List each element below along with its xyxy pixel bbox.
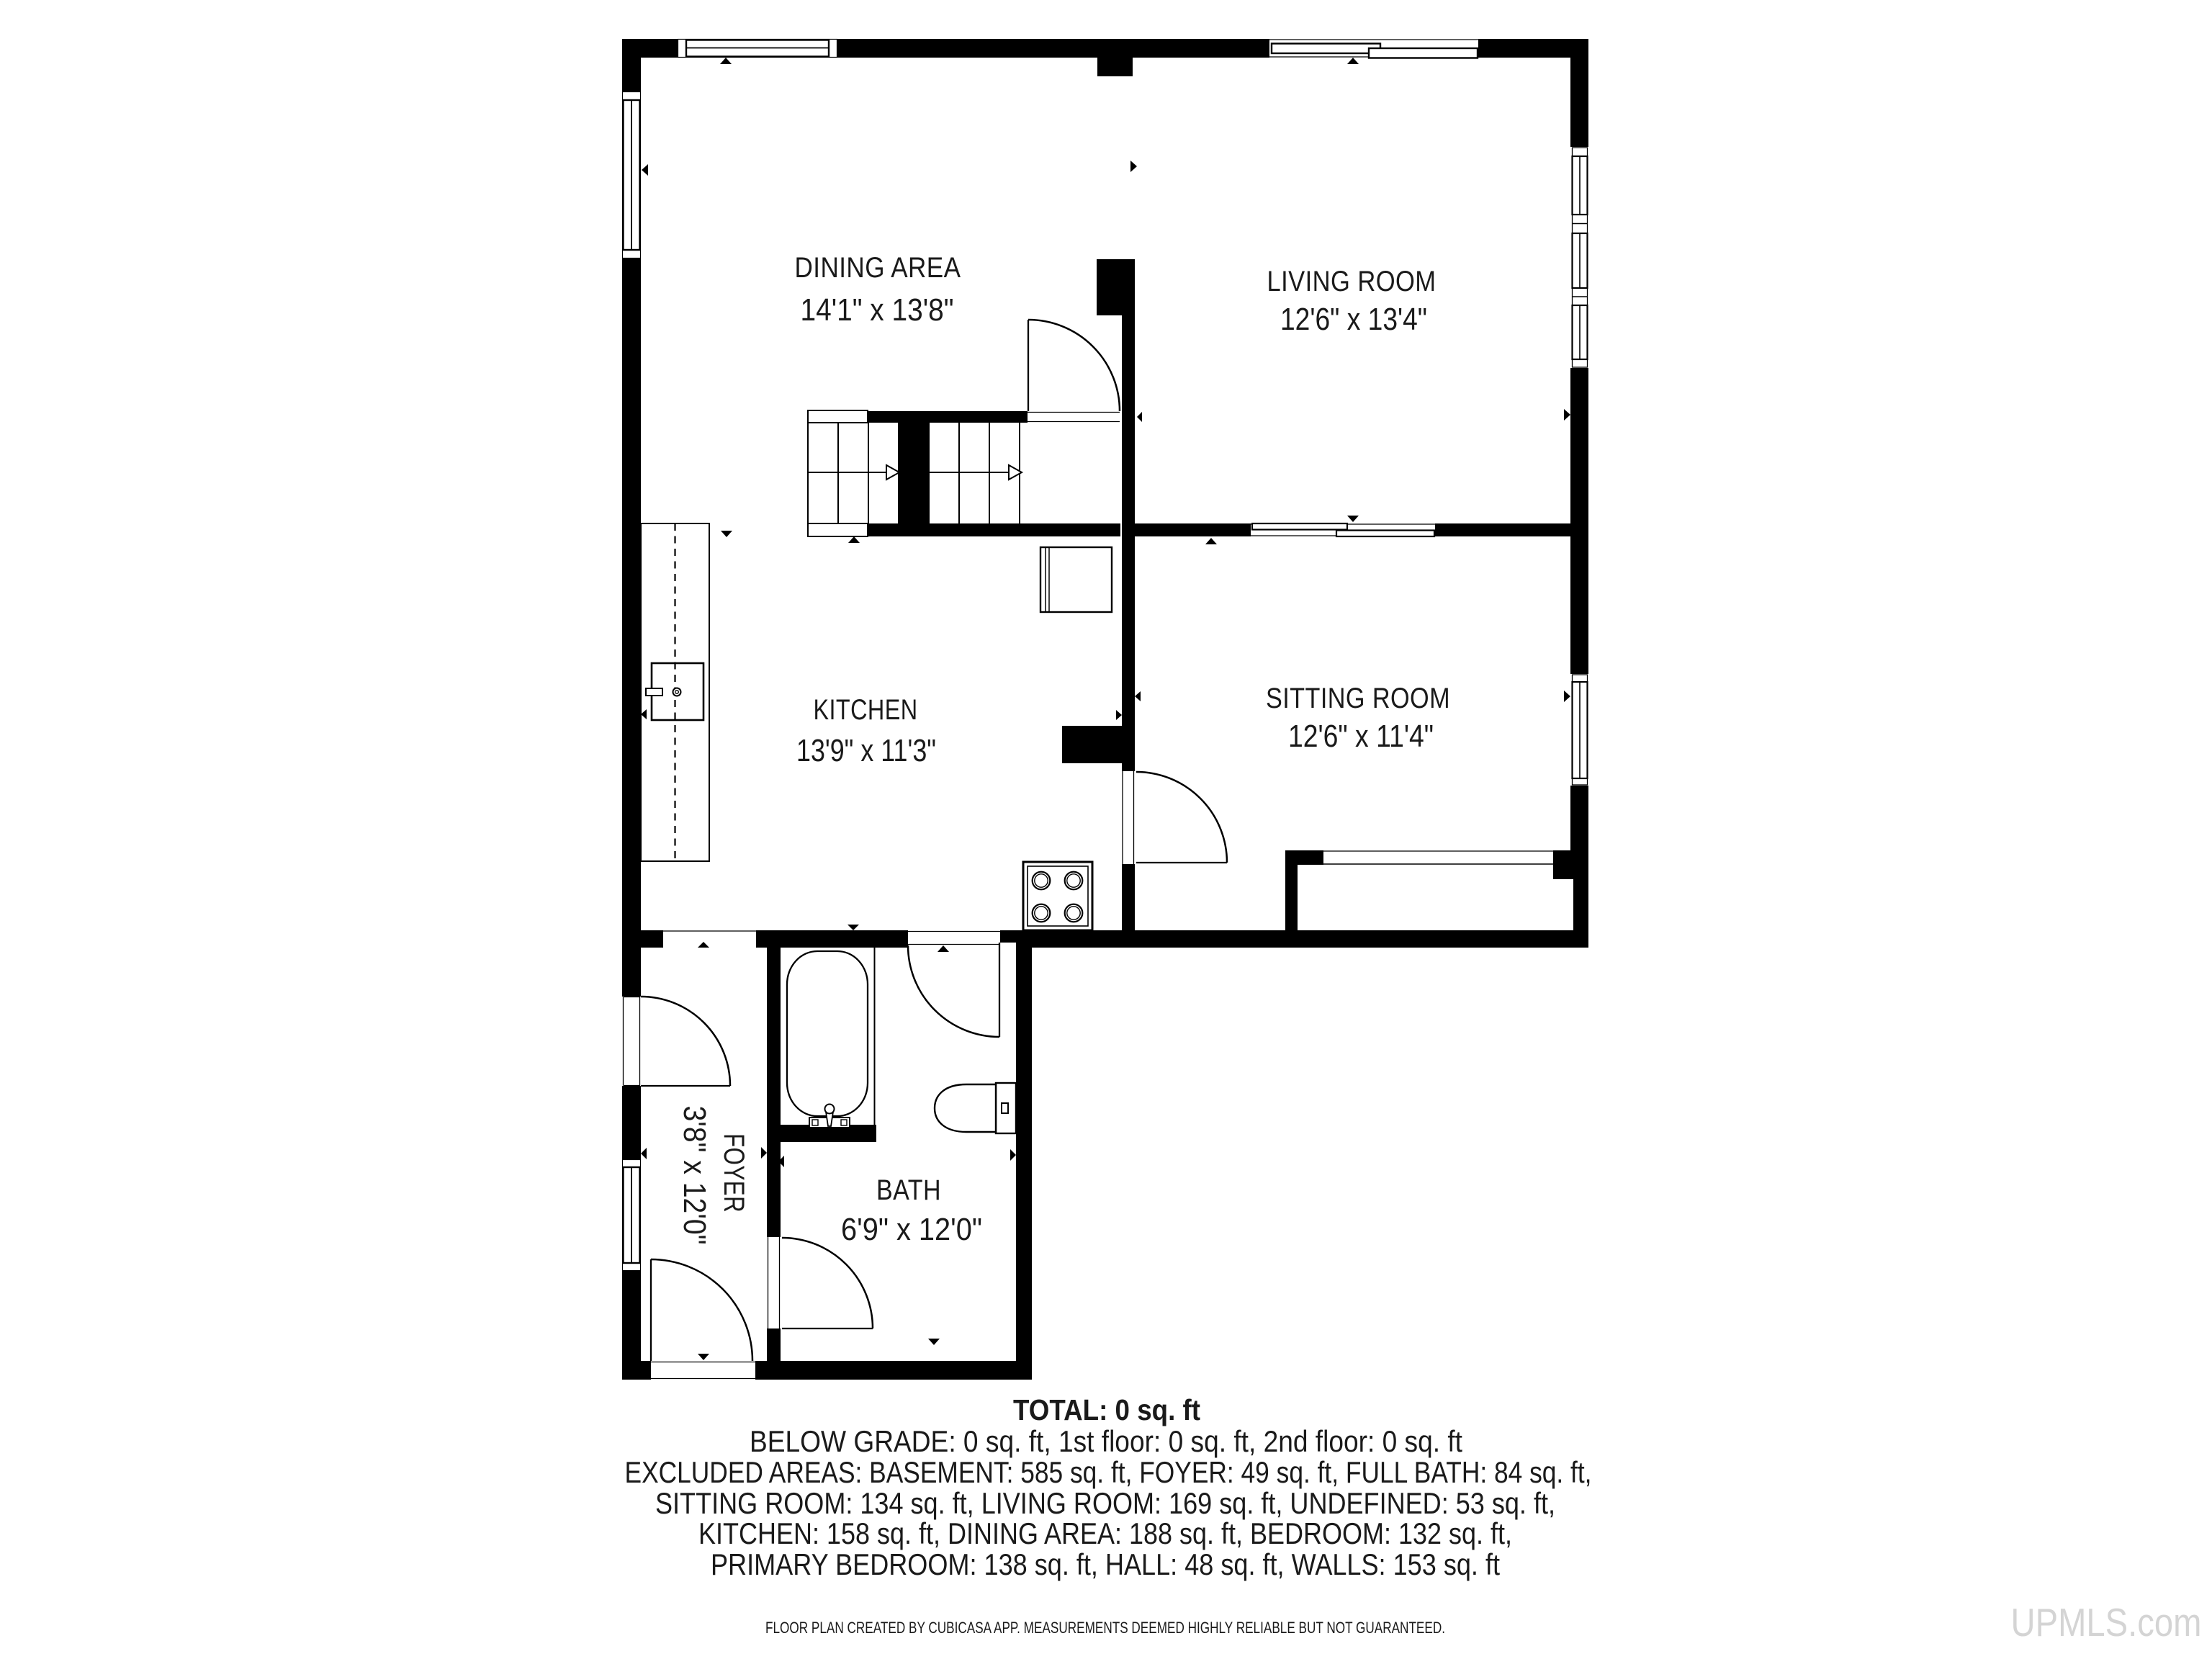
- svg-text:6'9" x 12'0": 6'9" x 12'0": [841, 1212, 982, 1247]
- svg-text:13'9" x 11'3": 13'9" x 11'3": [796, 733, 936, 768]
- svg-text:UPMLS.com: UPMLS.com: [2011, 1600, 2202, 1645]
- svg-text:TOTAL: 0 sq. ft: TOTAL: 0 sq. ft: [1013, 1393, 1200, 1426]
- svg-text:FLOOR PLAN CREATED BY CUBICASA: FLOOR PLAN CREATED BY CUBICASA APP. MEAS…: [765, 1619, 1445, 1637]
- svg-text:BATH: BATH: [876, 1174, 941, 1206]
- svg-text:DINING AREA: DINING AREA: [795, 252, 961, 284]
- svg-text:FOYER: FOYER: [718, 1133, 750, 1213]
- svg-text:KITCHEN: 158 sq. ft, DINING AR: KITCHEN: 158 sq. ft, DINING AREA: 188 sq…: [698, 1516, 1512, 1550]
- svg-text:EXCLUDED AREAS: BASEMENT: 585: EXCLUDED AREAS: BASEMENT: 585 sq. ft, FO…: [625, 1455, 1592, 1489]
- svg-text:SITTING ROOM: SITTING ROOM: [1266, 683, 1450, 714]
- svg-text:BELOW GRADE: 0 sq. ft, 1st flo: BELOW GRADE: 0 sq. ft, 1st floor: 0 sq. …: [750, 1424, 1462, 1458]
- svg-text:12'6" x 13'4": 12'6" x 13'4": [1280, 302, 1427, 337]
- svg-text:SITTING ROOM: 134 sq. ft, LIVI: SITTING ROOM: 134 sq. ft, LIVING ROOM: 1…: [655, 1486, 1555, 1520]
- svg-text:KITCHEN: KITCHEN: [814, 694, 918, 726]
- svg-text:PRIMARY BEDROOM: 138 sq. ft, H: PRIMARY BEDROOM: 138 sq. ft, HALL: 48 sq…: [711, 1547, 1500, 1581]
- svg-text:LIVING ROOM: LIVING ROOM: [1267, 266, 1437, 297]
- svg-text:14'1" x 13'8": 14'1" x 13'8": [801, 292, 954, 328]
- svg-text:12'6" x 11'4": 12'6" x 11'4": [1288, 719, 1434, 754]
- svg-text:3'8" x 12'0": 3'8" x 12'0": [677, 1106, 712, 1245]
